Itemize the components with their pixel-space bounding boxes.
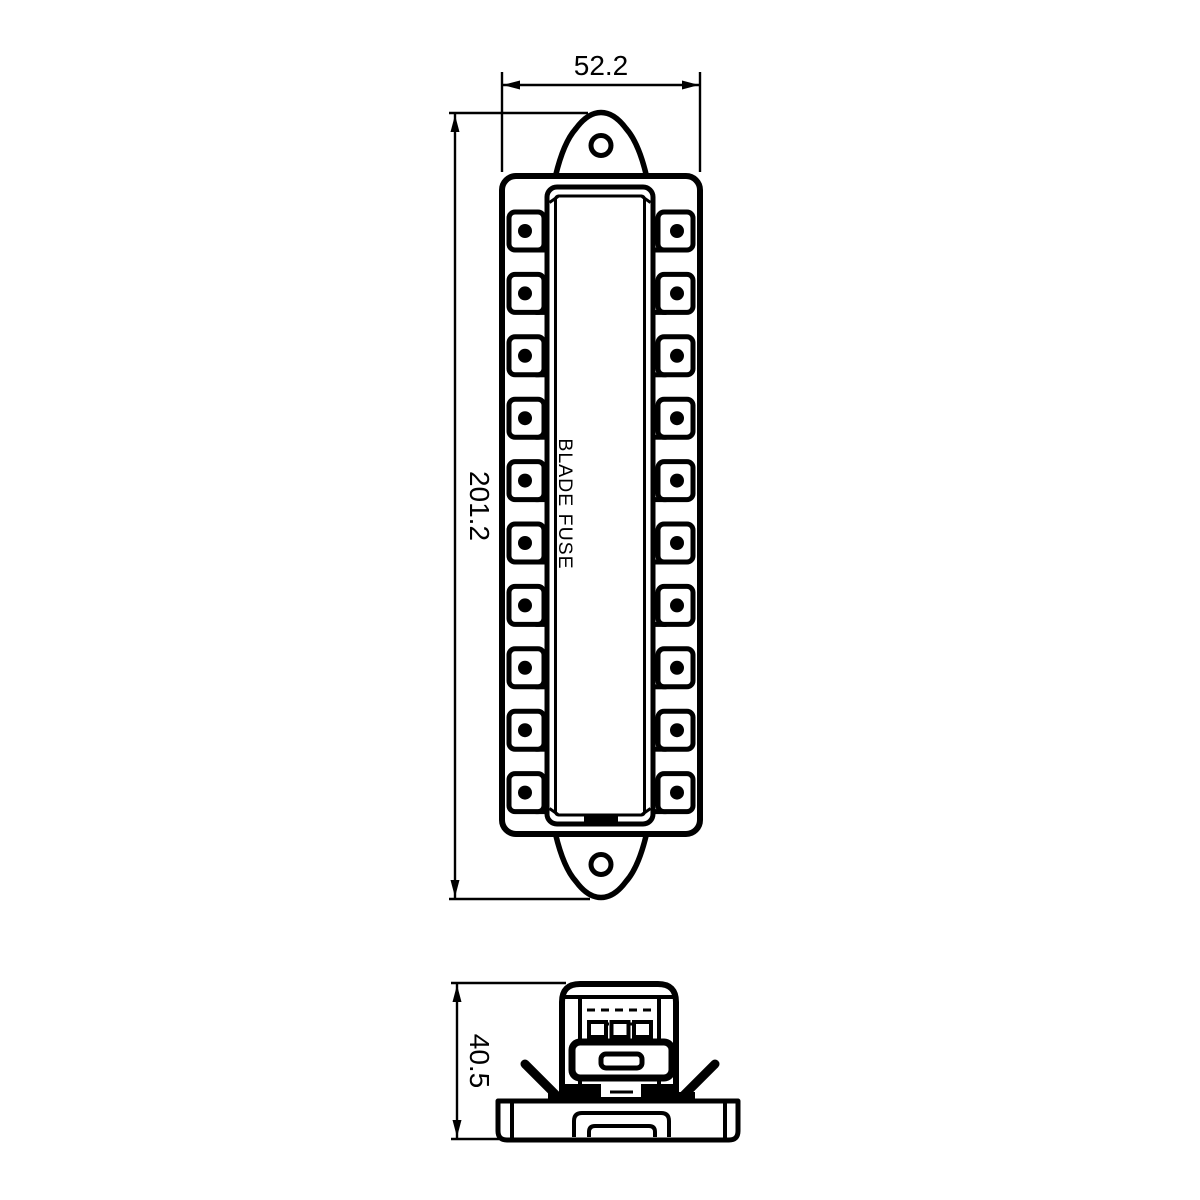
mounting-tab-bottom xyxy=(556,834,647,898)
lid-latch xyxy=(584,816,618,825)
holder-housing xyxy=(548,984,695,1101)
housing-foot-left xyxy=(565,1084,601,1101)
width-dimension-label: 52.2 xyxy=(574,50,629,81)
mounting-hole-bottom xyxy=(591,855,611,875)
arrowhead-left xyxy=(503,81,520,90)
spring-wing-right xyxy=(684,1064,715,1095)
mounting-hole-top xyxy=(591,136,611,156)
mounting-tab-top xyxy=(556,113,647,177)
top-view: 52.2 201.2 xyxy=(449,50,700,899)
cover-slot xyxy=(601,1054,642,1068)
engineering-drawing: 52.2 201.2 xyxy=(0,0,1200,1200)
arrowhead-bottom xyxy=(453,1120,462,1137)
product-label: BLADE FUSE xyxy=(554,438,576,569)
arrowhead-top xyxy=(451,115,460,132)
wing-step-left xyxy=(548,1092,566,1101)
side-view: 40.5 xyxy=(451,983,738,1140)
height-dimension-label: 201.2 xyxy=(464,471,495,541)
housing-foot-right xyxy=(641,1084,677,1101)
arrowhead-right xyxy=(682,81,699,90)
base-plate-outline xyxy=(498,1101,738,1140)
blade-fuse-holder-drawing: 52.2 201.2 xyxy=(0,0,1200,1200)
fuse-element xyxy=(589,1022,606,1037)
spring-wing-left xyxy=(525,1064,556,1095)
arrowhead-top xyxy=(453,985,462,1002)
base-plate xyxy=(498,1101,738,1140)
fuse-element xyxy=(612,1022,629,1037)
side-height-dimension-label: 40.5 xyxy=(464,1034,495,1089)
wing-step-right xyxy=(677,1092,695,1101)
fuse-element xyxy=(634,1022,651,1037)
cover-lid: BLADE FUSE xyxy=(547,187,653,825)
arrowhead-bottom xyxy=(451,880,460,897)
